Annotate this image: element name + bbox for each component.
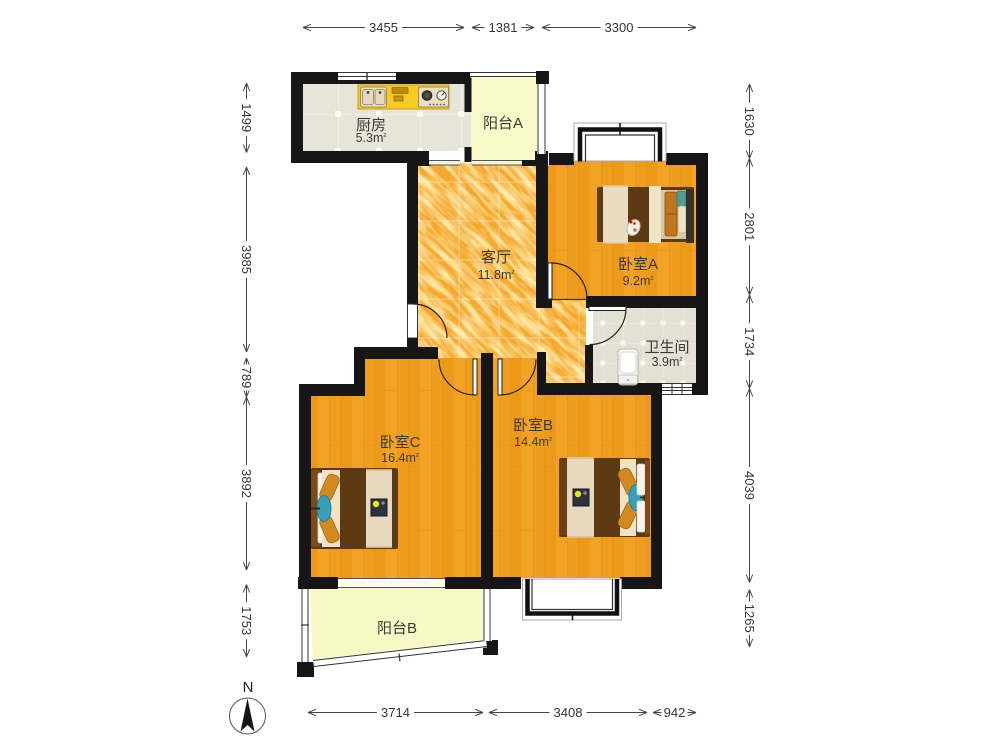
- svg-text:1499: 1499: [239, 103, 254, 132]
- svg-text:4039: 4039: [742, 471, 757, 500]
- svg-text:1381: 1381: [489, 20, 518, 35]
- svg-text:3985: 3985: [239, 245, 254, 274]
- svg-text:客厅: 客厅: [481, 249, 511, 266]
- svg-text:3892: 3892: [239, 469, 254, 498]
- svg-text:1734: 1734: [742, 327, 757, 356]
- svg-text:卧室A: 卧室A: [618, 256, 658, 273]
- svg-text:卫生间: 卫生间: [644, 339, 689, 356]
- svg-text:789: 789: [239, 367, 254, 389]
- svg-text:卧室C: 卧室C: [380, 434, 421, 451]
- svg-text:3455: 3455: [369, 20, 398, 35]
- svg-text:9.2m²: 9.2m²: [623, 274, 654, 288]
- svg-text:5.3m²: 5.3m²: [356, 131, 387, 145]
- svg-text:3714: 3714: [381, 705, 410, 720]
- svg-text:2801: 2801: [742, 212, 757, 241]
- svg-text:N: N: [243, 679, 254, 696]
- svg-text:阳台B: 阳台B: [377, 620, 417, 637]
- svg-text:3408: 3408: [554, 705, 583, 720]
- svg-text:3.9m²: 3.9m²: [652, 355, 683, 369]
- svg-text:1630: 1630: [742, 107, 757, 136]
- svg-text:14.4m²: 14.4m²: [514, 435, 552, 449]
- svg-text:卧室B: 卧室B: [513, 417, 553, 434]
- svg-text:1753: 1753: [239, 606, 254, 635]
- svg-text:11.8m²: 11.8m²: [478, 268, 515, 282]
- svg-text:3300: 3300: [605, 20, 634, 35]
- svg-text:1265: 1265: [742, 604, 757, 633]
- svg-text:阳台A: 阳台A: [483, 115, 523, 132]
- svg-text:16.4m²: 16.4m²: [381, 451, 419, 465]
- svg-text:942: 942: [664, 705, 686, 720]
